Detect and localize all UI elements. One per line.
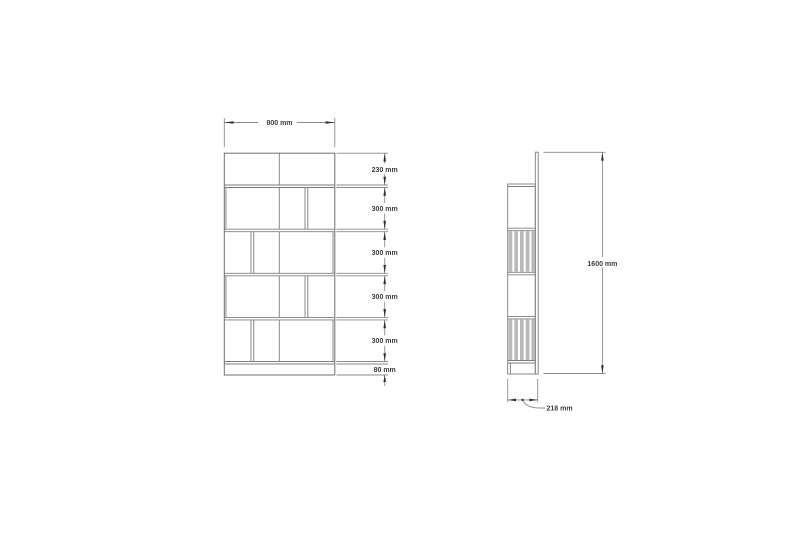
svg-text:218 mm: 218 mm — [547, 406, 573, 413]
svg-text:300 mm: 300 mm — [372, 294, 398, 301]
svg-text:80 mm: 80 mm — [374, 367, 396, 374]
svg-text:300 mm: 300 mm — [372, 338, 398, 345]
svg-text:800 mm: 800 mm — [266, 120, 292, 127]
svg-text:230 mm: 230 mm — [372, 167, 398, 174]
svg-text:300 mm: 300 mm — [372, 206, 398, 213]
svg-text:300 mm: 300 mm — [372, 250, 398, 257]
svg-text:1600 mm: 1600 mm — [587, 261, 617, 268]
